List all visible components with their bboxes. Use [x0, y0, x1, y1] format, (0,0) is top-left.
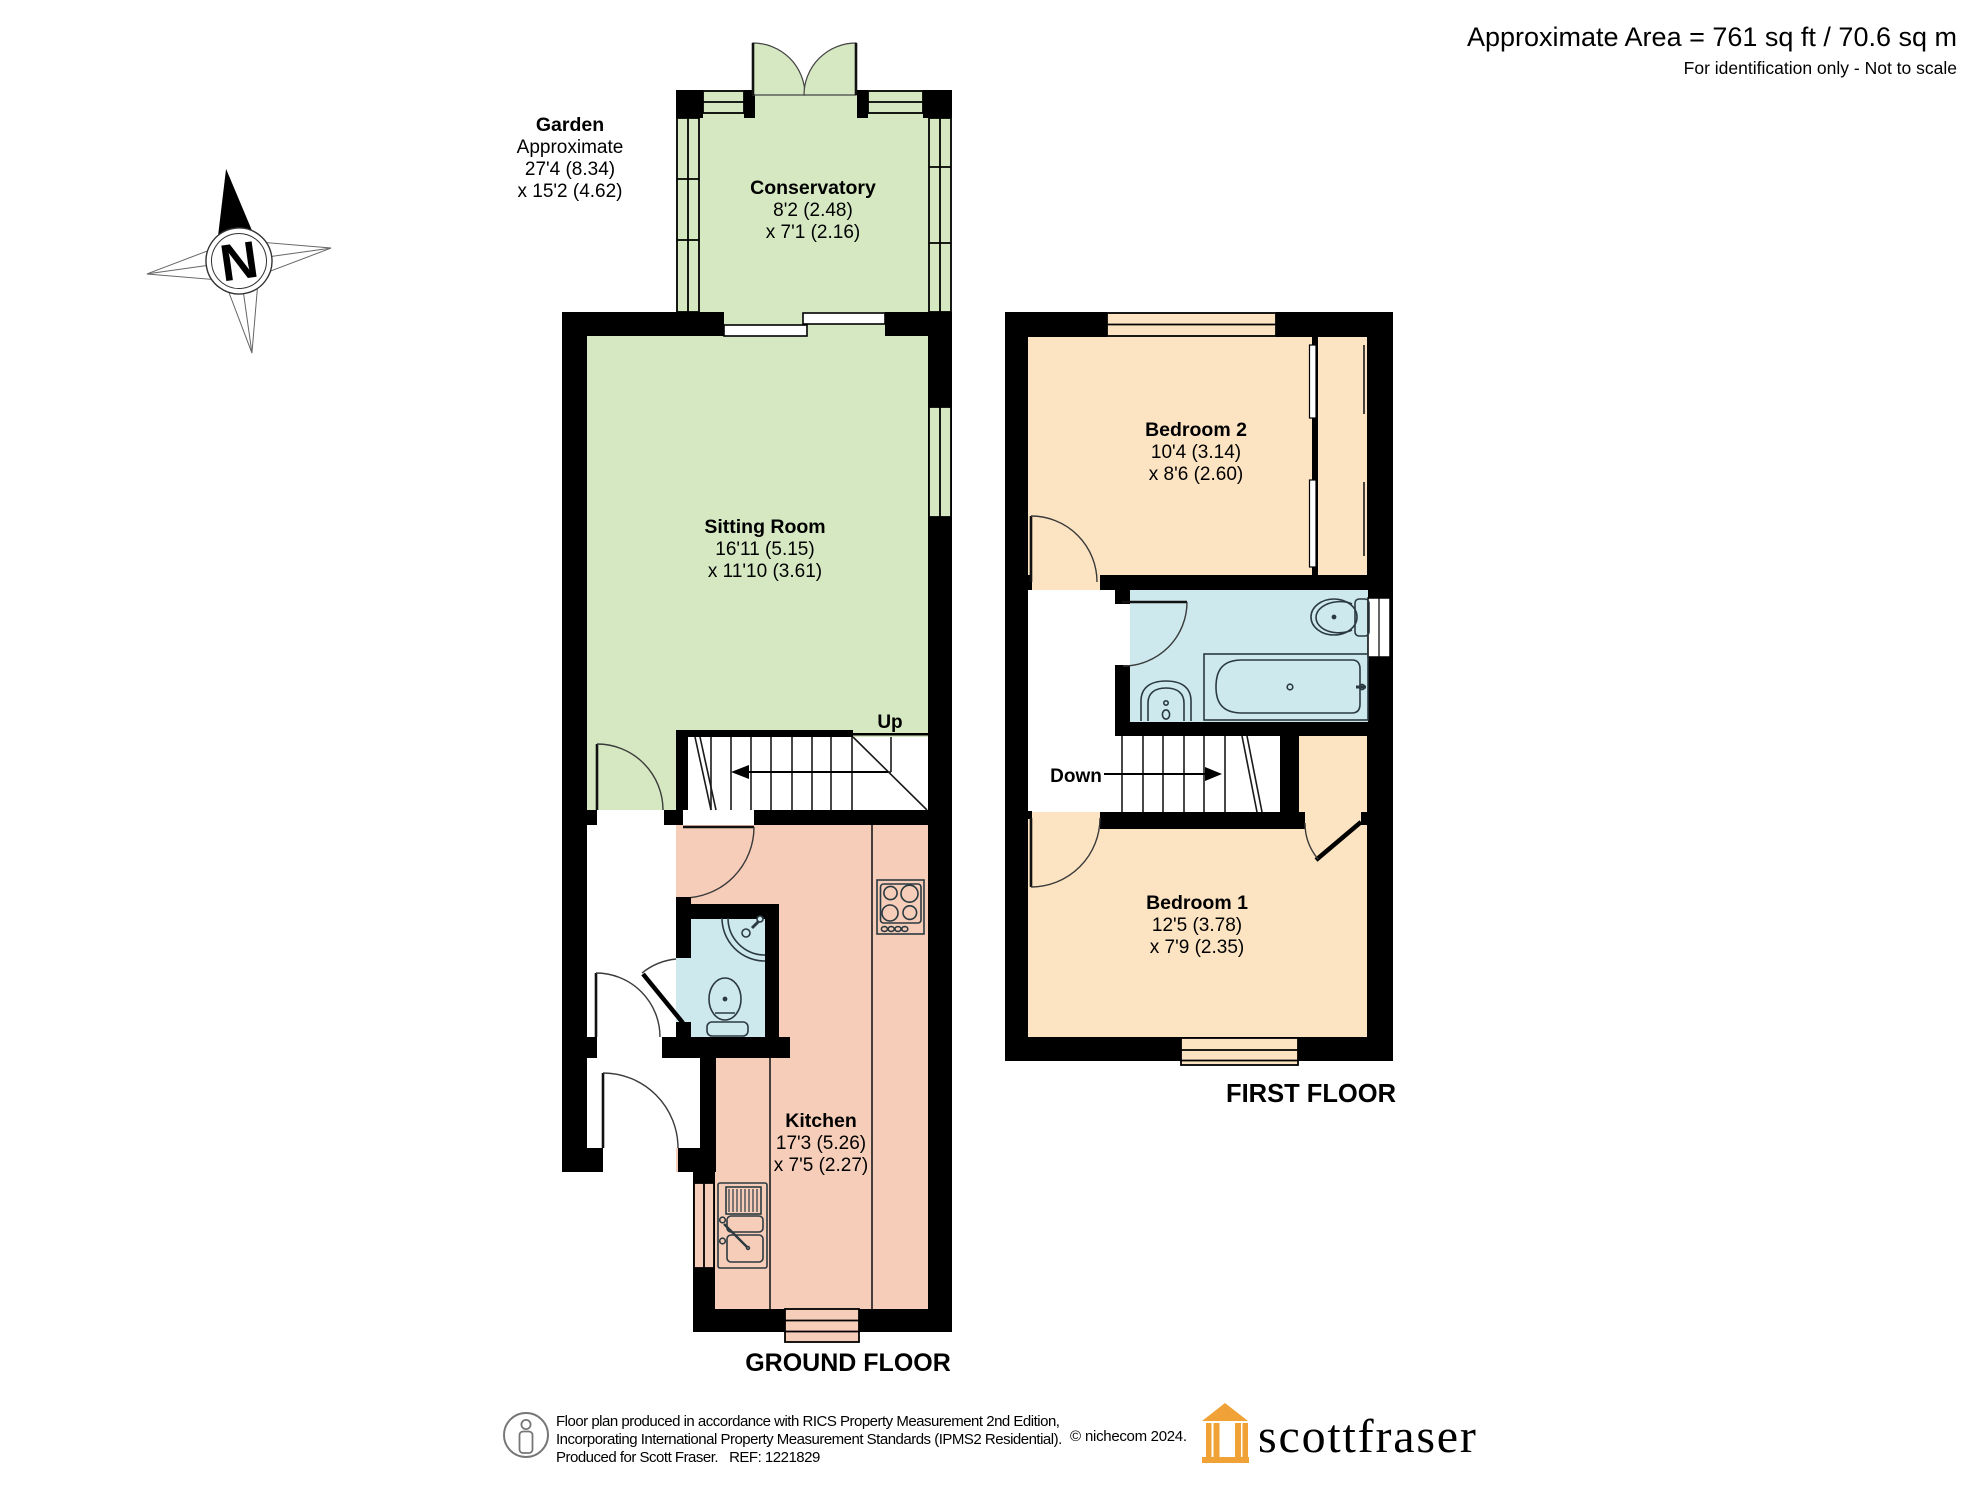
- svg-text:Bedroom 1: Bedroom 1: [1146, 892, 1248, 914]
- svg-text:Bedroom 2: Bedroom 2: [1145, 419, 1247, 441]
- svg-text:FIRST FLOOR: FIRST FLOOR: [1226, 1080, 1396, 1108]
- svg-text:©: ©: [1070, 1428, 1081, 1445]
- svg-text:N: N: [217, 231, 262, 294]
- svg-text:Approximate Area = 761 sq ft /: Approximate Area = 761 sq ft / 70.6 sq m: [1467, 22, 1957, 52]
- svg-text:Down: Down: [1050, 766, 1102, 787]
- svg-text:scottfraser: scottfraser: [1258, 1410, 1478, 1463]
- svg-text:16'11 (5.15): 16'11 (5.15): [715, 539, 814, 560]
- svg-text:17'3 (5.26): 17'3 (5.26): [776, 1133, 866, 1154]
- svg-text:12'5 (3.78): 12'5 (3.78): [1152, 915, 1242, 936]
- svg-text:Floor plan produced in accorda: Floor plan produced in accordance with R…: [556, 1413, 1059, 1430]
- svg-text:x 8'6 (2.60): x 8'6 (2.60): [1149, 464, 1243, 485]
- svg-text:x 7'1 (2.16): x 7'1 (2.16): [766, 222, 860, 243]
- svg-text:Incorporating International Pr: Incorporating International Property Mea…: [556, 1431, 1062, 1448]
- svg-text:Approximate: Approximate: [517, 137, 624, 158]
- svg-text:x 7'5 (2.27): x 7'5 (2.27): [774, 1155, 868, 1176]
- svg-text:GROUND FLOOR: GROUND FLOOR: [745, 1349, 951, 1377]
- svg-text:Kitchen: Kitchen: [785, 1110, 857, 1132]
- svg-text:x 7'9 (2.35): x 7'9 (2.35): [1150, 937, 1244, 958]
- svg-text:8'2 (2.48): 8'2 (2.48): [773, 200, 853, 221]
- svg-text:Produced for Scott Fraser. R: Produced for Scott Fraser. REF: 1221829: [556, 1449, 820, 1466]
- svg-text:For identification only - Not: For identification only - Not to scale: [1684, 58, 1957, 78]
- svg-text:nichecom 2024.: nichecom 2024.: [1085, 1428, 1187, 1445]
- svg-text:Up: Up: [877, 712, 902, 733]
- svg-text:x 11'10 (3.61): x 11'10 (3.61): [708, 561, 822, 582]
- svg-text:Sitting Room: Sitting Room: [704, 516, 825, 538]
- svg-text:x 15'2 (4.62): x 15'2 (4.62): [517, 181, 622, 202]
- svg-text:Conservatory: Conservatory: [750, 177, 876, 199]
- svg-text:10'4 (3.14): 10'4 (3.14): [1151, 442, 1241, 463]
- svg-text:27'4 (8.34): 27'4 (8.34): [525, 159, 615, 180]
- svg-text:Garden: Garden: [536, 114, 604, 136]
